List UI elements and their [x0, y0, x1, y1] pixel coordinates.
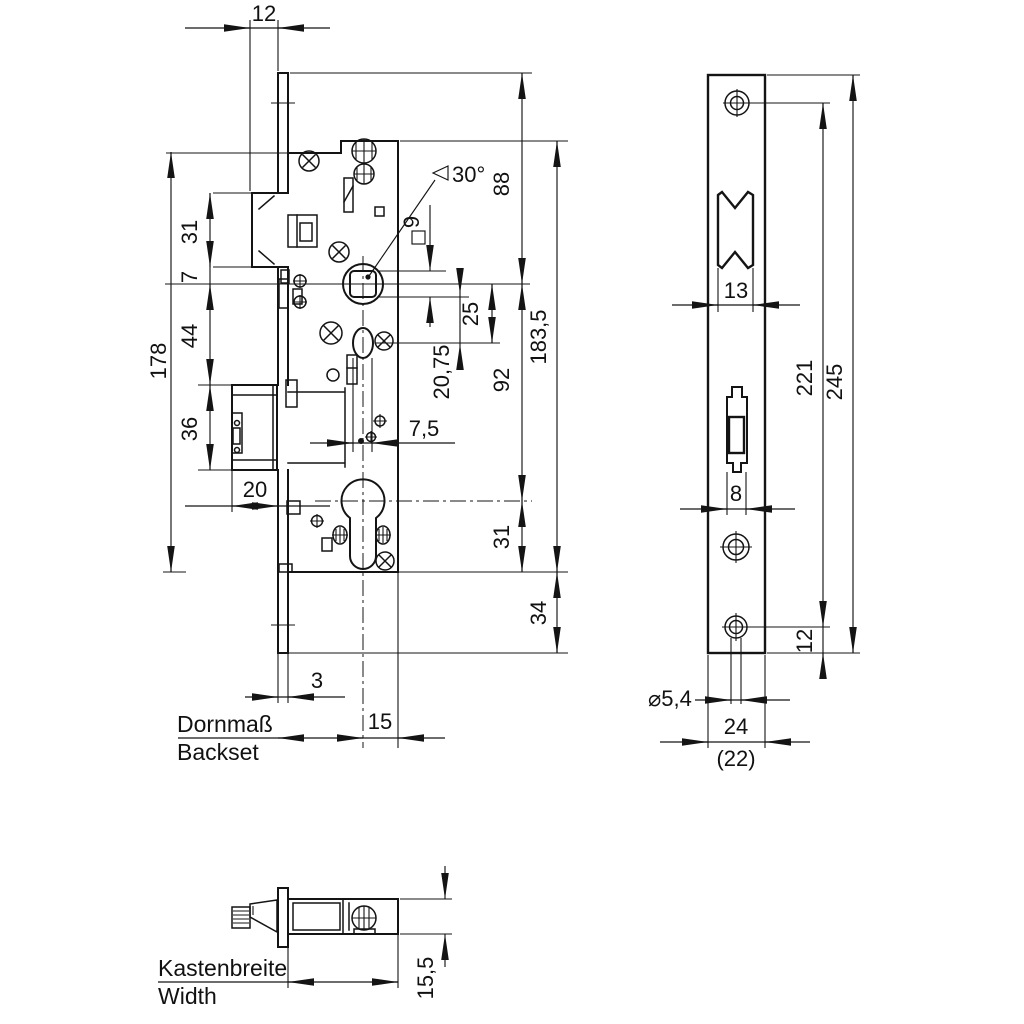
follower-top-view [352, 906, 376, 934]
top-view: Kastenbreite Width 15,5 [158, 866, 452, 1009]
case-divider [343, 899, 349, 934]
top-screw-hole [723, 89, 751, 117]
faceplate-view: 13 8 221 245 12 ⌀5,4 24 (22) [648, 75, 860, 771]
square-symbol-icon [412, 231, 425, 244]
dim-oval-width: 7,5 [409, 416, 440, 441]
slot-and-holes [279, 178, 391, 572]
middle-screw-hole [720, 531, 752, 563]
dim-bolt-height: 36 [177, 417, 202, 441]
deadbolt [232, 385, 345, 470]
phillips-screw-icon [352, 139, 376, 184]
latch-cutout [718, 192, 753, 268]
latch-top-view [250, 900, 277, 932]
dim-square-to-oval: 20,75 [429, 344, 454, 399]
dim-square-size: 9 [399, 216, 424, 228]
dim-bottom-to-plate-end: 34 [526, 601, 551, 625]
centerlines [315, 256, 532, 748]
bolt-cutout [727, 387, 747, 472]
dim-bolt-cutout-width: 8 [730, 481, 742, 506]
width-label-en: Width [158, 983, 217, 1009]
case-inner-detail [293, 903, 340, 930]
lock-technical-drawing: 12 31 7 44 36 178 20 3 15 88 92 31 183,5… [0, 0, 1024, 1024]
dim-faceplate-lip: 3 [311, 668, 323, 693]
angle-symbol-icon [433, 166, 448, 180]
dim-axis-to-cylinder: 92 [489, 368, 514, 392]
drawing-canvas: 12 31 7 44 36 178 20 3 15 88 92 31 183,5… [0, 0, 1024, 1024]
dim-case-height: 178 [146, 343, 171, 380]
faceplate-outline [708, 75, 765, 653]
dim-latch-cutout-width: 13 [724, 278, 748, 303]
internal-parts [279, 139, 394, 572]
faceplate-dimension-lines [660, 75, 853, 742]
dim-plate-width: 24 [724, 714, 748, 739]
dim-plate-length: 245 [822, 364, 847, 401]
backset-label-de: Dornmaß [177, 711, 273, 737]
front-view: 12 31 7 44 36 178 20 3 15 88 92 31 183,5… [146, 1, 568, 765]
latch-bolt [252, 193, 317, 267]
dim-screw-spacing: 221 [792, 360, 817, 397]
dim-screw-hole-diameter: ⌀5,4 [648, 686, 692, 711]
dim-plate-width-alt: (22) [716, 746, 755, 771]
bottom-screw-hole [722, 613, 750, 641]
dim-axis-to-bolt: 44 [177, 324, 202, 348]
dim-cyl-to-bottom: 31 [489, 525, 514, 549]
width-label-de: Kastenbreite [158, 955, 287, 981]
dim-bolt-throw: 20 [243, 477, 267, 502]
dim-latch-height: 31 [177, 220, 202, 244]
dim-plate-top-to-axis: 88 [489, 172, 514, 196]
bolt-top-view [232, 907, 250, 928]
backset-label-en: Backset [177, 739, 259, 765]
dim-latch-projection: 12 [252, 1, 276, 26]
faceplate-extension-lines [708, 75, 860, 748]
dim-axis-to-back: 15 [368, 709, 392, 734]
faceplate-top-view [278, 888, 288, 947]
dim-latch-to-axis: 7 [177, 271, 202, 283]
dim-case-total-height: 183,5 [526, 309, 551, 364]
dim-axis-to-oval: 25 [458, 302, 483, 326]
dim-bevel-angle: 30° [452, 162, 485, 187]
dim-case-thickness: 15,5 [413, 957, 438, 1000]
dim-screw-to-end: 12 [792, 629, 817, 653]
